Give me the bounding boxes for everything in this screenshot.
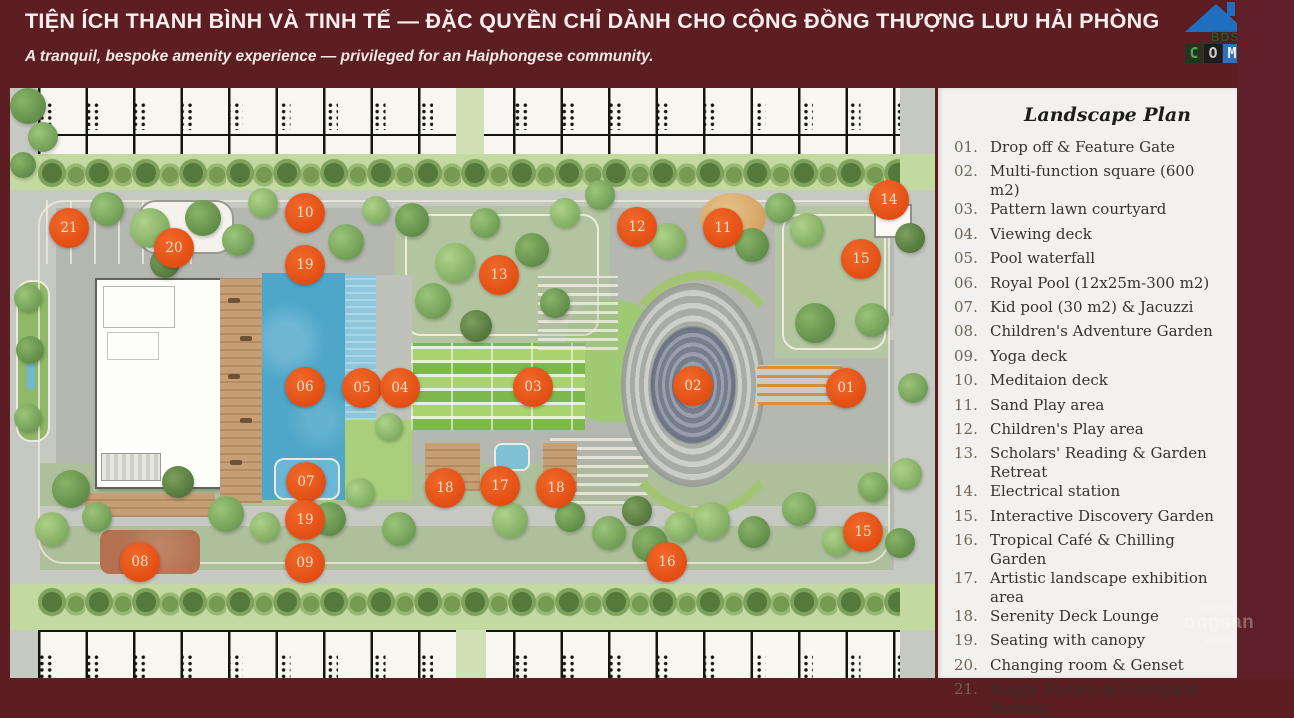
legend-item: 19.Seating with canopy: [954, 631, 1226, 655]
legend-item-number: 18.: [954, 607, 990, 626]
tree: [692, 502, 730, 540]
plan-marker: 11: [703, 208, 743, 248]
legend-item: 01.Drop off & Feature Gate: [954, 138, 1226, 162]
plan-marker: 15: [841, 239, 881, 279]
legend-item: 05.Pool waterfall: [954, 249, 1226, 273]
tree: [222, 224, 254, 256]
tree: [540, 288, 570, 318]
tree: [550, 198, 580, 228]
legend-item-number: 05.: [954, 249, 990, 268]
slide: TIỆN ÍCH THANH BÌNH VÀ TINH TẾ — ĐẶC QUY…: [0, 0, 1294, 678]
townhouse-gap-bottom: [456, 630, 486, 678]
legend-item: 13.Scholars' Reading & Garden Retreat: [954, 444, 1226, 482]
legend-item-number: 02.: [954, 162, 990, 181]
legend-item-number: 21.: [954, 680, 990, 699]
lounger-icon: [240, 336, 252, 341]
site-plan: 21 20 10 19 13 12 11 14 15 06 05 04 03 0…: [10, 88, 935, 678]
legend-item-label: Interactive Discovery Garden: [990, 507, 1214, 526]
legend-item-number: 14.: [954, 482, 990, 501]
tree: [738, 516, 770, 548]
plan-marker: 20: [154, 228, 194, 268]
legend-item: 03.Pattern lawn courtyard: [954, 200, 1226, 224]
legend-item: 12.Children's Play area: [954, 420, 1226, 444]
pool-deck: [220, 278, 262, 503]
legend-item-label: Royal Pool (12x25m-300 m2): [990, 274, 1209, 293]
legend-item-number: 16.: [954, 531, 990, 550]
plan-marker: 01: [826, 368, 866, 408]
legend-item: 18.Serenity Deck Lounge: [954, 607, 1226, 631]
tree: [795, 303, 835, 343]
legend-item-label: Buggy Station & Courtyard Parking: [990, 680, 1226, 718]
plan-marker: 16: [647, 542, 687, 582]
tree: [515, 233, 549, 267]
plan-marker: 10: [285, 193, 325, 233]
legend-item-number: 06.: [954, 274, 990, 293]
plan-marker: 19: [285, 500, 325, 540]
tree: [10, 152, 36, 178]
plan-marker: 03: [513, 367, 553, 407]
page-title: TIỆN ÍCH THANH BÌNH VÀ TINH TẾ — ĐẶC QUY…: [25, 9, 1185, 34]
legend-item-label: Children's Adventure Garden: [990, 322, 1213, 341]
legend-item-label: Pool waterfall: [990, 249, 1095, 268]
tree: [782, 492, 816, 526]
tree: [248, 188, 278, 218]
legend-title: Landscape Plan: [1024, 104, 1191, 126]
tree: [345, 478, 375, 508]
tree: [10, 88, 46, 124]
plan-marker: 18: [425, 468, 465, 508]
lounger-icon: [228, 374, 240, 379]
legend-item-number: 15.: [954, 507, 990, 526]
legend-item-label: Pattern lawn courtyard: [990, 200, 1166, 219]
legend-item-label: Artistic landscape exhibition area: [990, 569, 1226, 607]
tree: [895, 223, 925, 253]
tree: [592, 516, 626, 550]
legend-item: 21.Buggy Station & Courtyard Parking: [954, 680, 1226, 718]
tree: [52, 470, 90, 508]
page-subtitle: A tranquil, bespoke amenity experience —…: [25, 48, 653, 66]
plan-marker: 07: [286, 462, 326, 502]
legend-item-number: 11.: [954, 396, 990, 415]
tree: [898, 373, 928, 403]
legend-item-number: 04.: [954, 225, 990, 244]
tree: [208, 496, 244, 532]
legend-item-label: Sand Play area: [990, 396, 1104, 415]
tree: [328, 224, 364, 260]
right-maroon-strip: [1237, 0, 1294, 678]
legend-item-label: Changing room & Genset: [990, 656, 1184, 675]
tree: [28, 122, 58, 152]
logo-letter-o: O: [1204, 44, 1222, 63]
legend-item: 16.Tropical Café & Chilling Garden: [954, 531, 1226, 569]
plan-marker: 12: [617, 207, 657, 247]
legend-item-number: 13.: [954, 444, 990, 463]
clubhouse-stairs: [101, 453, 161, 481]
lounger-icon: [228, 298, 240, 303]
tree: [585, 180, 615, 210]
legend-item: 04.Viewing deck: [954, 225, 1226, 249]
street-tree-row-bottom: [38, 582, 900, 622]
tree: [415, 283, 451, 319]
plan-marker: 09: [285, 543, 325, 583]
legend-item-label: Drop off & Feature Gate: [990, 138, 1175, 157]
plan-marker: 04: [380, 368, 420, 408]
pattern-lawn-courtyard: [411, 343, 585, 430]
lounger-icon: [230, 460, 242, 465]
legend-item-label: Electrical station: [990, 482, 1120, 501]
plan-marker: 05: [342, 368, 382, 408]
legend-item-number: 10.: [954, 371, 990, 390]
legend-item: 20.Changing room & Genset: [954, 656, 1226, 680]
plan-marker: 17: [480, 466, 520, 506]
tree: [35, 512, 69, 546]
tree: [858, 472, 888, 502]
logo-com-text: C O M: [1185, 44, 1241, 63]
legend-item-number: 07.: [954, 298, 990, 317]
tree: [890, 458, 922, 490]
legend-item-number: 03.: [954, 200, 990, 219]
legend-item: 17.Artistic landscape exhibition area: [954, 569, 1226, 607]
tree: [14, 404, 42, 432]
tree: [14, 284, 42, 312]
tree: [622, 496, 652, 526]
plan-marker: 08: [120, 542, 160, 582]
tree: [885, 528, 915, 558]
legend-item-number: 17.: [954, 569, 990, 588]
logo-letter-c: C: [1185, 44, 1203, 63]
logo-bds-text: BDS: [1211, 30, 1239, 44]
legend-item-label: Viewing deck: [990, 225, 1092, 244]
legend-item: 11.Sand Play area: [954, 396, 1226, 420]
tree: [492, 502, 528, 538]
plan-marker: 02: [673, 366, 713, 406]
legend-item: 14.Electrical station: [954, 482, 1226, 506]
legend-item: 07.Kid pool (30 m2) & Jacuzzi: [954, 298, 1226, 322]
legend-item-label: Children's Play area: [990, 420, 1144, 439]
header-banner: TIỆN ÍCH THANH BÌNH VÀ TINH TẾ — ĐẶC QUY…: [0, 0, 1294, 88]
tree: [435, 243, 475, 283]
legend-item-label: Seating with canopy: [990, 631, 1145, 650]
legend-item: 09.Yoga deck: [954, 347, 1226, 371]
tree: [665, 512, 695, 542]
plan-marker: 19: [285, 245, 325, 285]
legend-item-label: Scholars' Reading & Garden Retreat: [990, 444, 1226, 482]
legend-item-label: Serenity Deck Lounge: [990, 607, 1159, 626]
townhouse-gap-top: [456, 88, 484, 154]
tree: [855, 303, 889, 337]
legend-item-label: Kid pool (30 m2) & Jacuzzi: [990, 298, 1193, 317]
tree: [470, 208, 500, 238]
tree: [765, 193, 795, 223]
legend-item-label: Tropical Café & Chilling Garden: [990, 531, 1226, 569]
plan-marker: 14: [869, 180, 909, 220]
legend-item: 06.Royal Pool (12x25m-300 m2): [954, 274, 1226, 298]
legend-item: 02.Multi-function square (600 m2): [954, 162, 1226, 200]
plan-marker: 18: [536, 468, 576, 508]
tree: [82, 502, 112, 532]
house-chimney-icon: [1227, 2, 1235, 16]
legend-list: 01.Drop off & Feature Gate 02.Multi-func…: [954, 138, 1226, 718]
legend-item-number: 20.: [954, 656, 990, 675]
tree: [162, 466, 194, 498]
tree: [362, 196, 390, 224]
legend-item: 10.Meditaion deck: [954, 371, 1226, 395]
tree: [90, 192, 124, 226]
clubhouse-interior: [103, 286, 175, 328]
lounger-icon: [240, 418, 252, 423]
tree: [250, 512, 280, 542]
legend-item-label: Yoga deck: [990, 347, 1067, 366]
plan-marker: 13: [479, 255, 519, 295]
legend-item-number: 09.: [954, 347, 990, 366]
legend-item-number: 08.: [954, 322, 990, 341]
plan-marker: 15: [843, 512, 883, 552]
tree: [375, 413, 403, 441]
legend-item-label: Multi-function square (600 m2): [990, 162, 1226, 200]
legend-item-number: 12.: [954, 420, 990, 439]
legend-item-label: Meditaion deck: [990, 371, 1108, 390]
tree: [185, 200, 221, 236]
tree: [382, 512, 416, 546]
street-tree-row-top: [38, 154, 900, 192]
tree: [395, 203, 429, 237]
tree: [16, 336, 44, 364]
legend-panel: Landscape Plan 01.Drop off & Feature Gat…: [938, 88, 1237, 678]
tree: [460, 310, 492, 342]
plan-marker: 06: [285, 367, 325, 407]
legend-item: 08.Children's Adventure Garden: [954, 322, 1226, 346]
legend-item-number: 19.: [954, 631, 990, 650]
plan-marker: 21: [49, 208, 89, 248]
clubhouse-building: [95, 278, 222, 489]
legend-item: 15.Interactive Discovery Garden: [954, 507, 1226, 531]
legend-item-number: 01.: [954, 138, 990, 157]
clubhouse-interior: [107, 332, 159, 360]
tree: [790, 213, 824, 247]
